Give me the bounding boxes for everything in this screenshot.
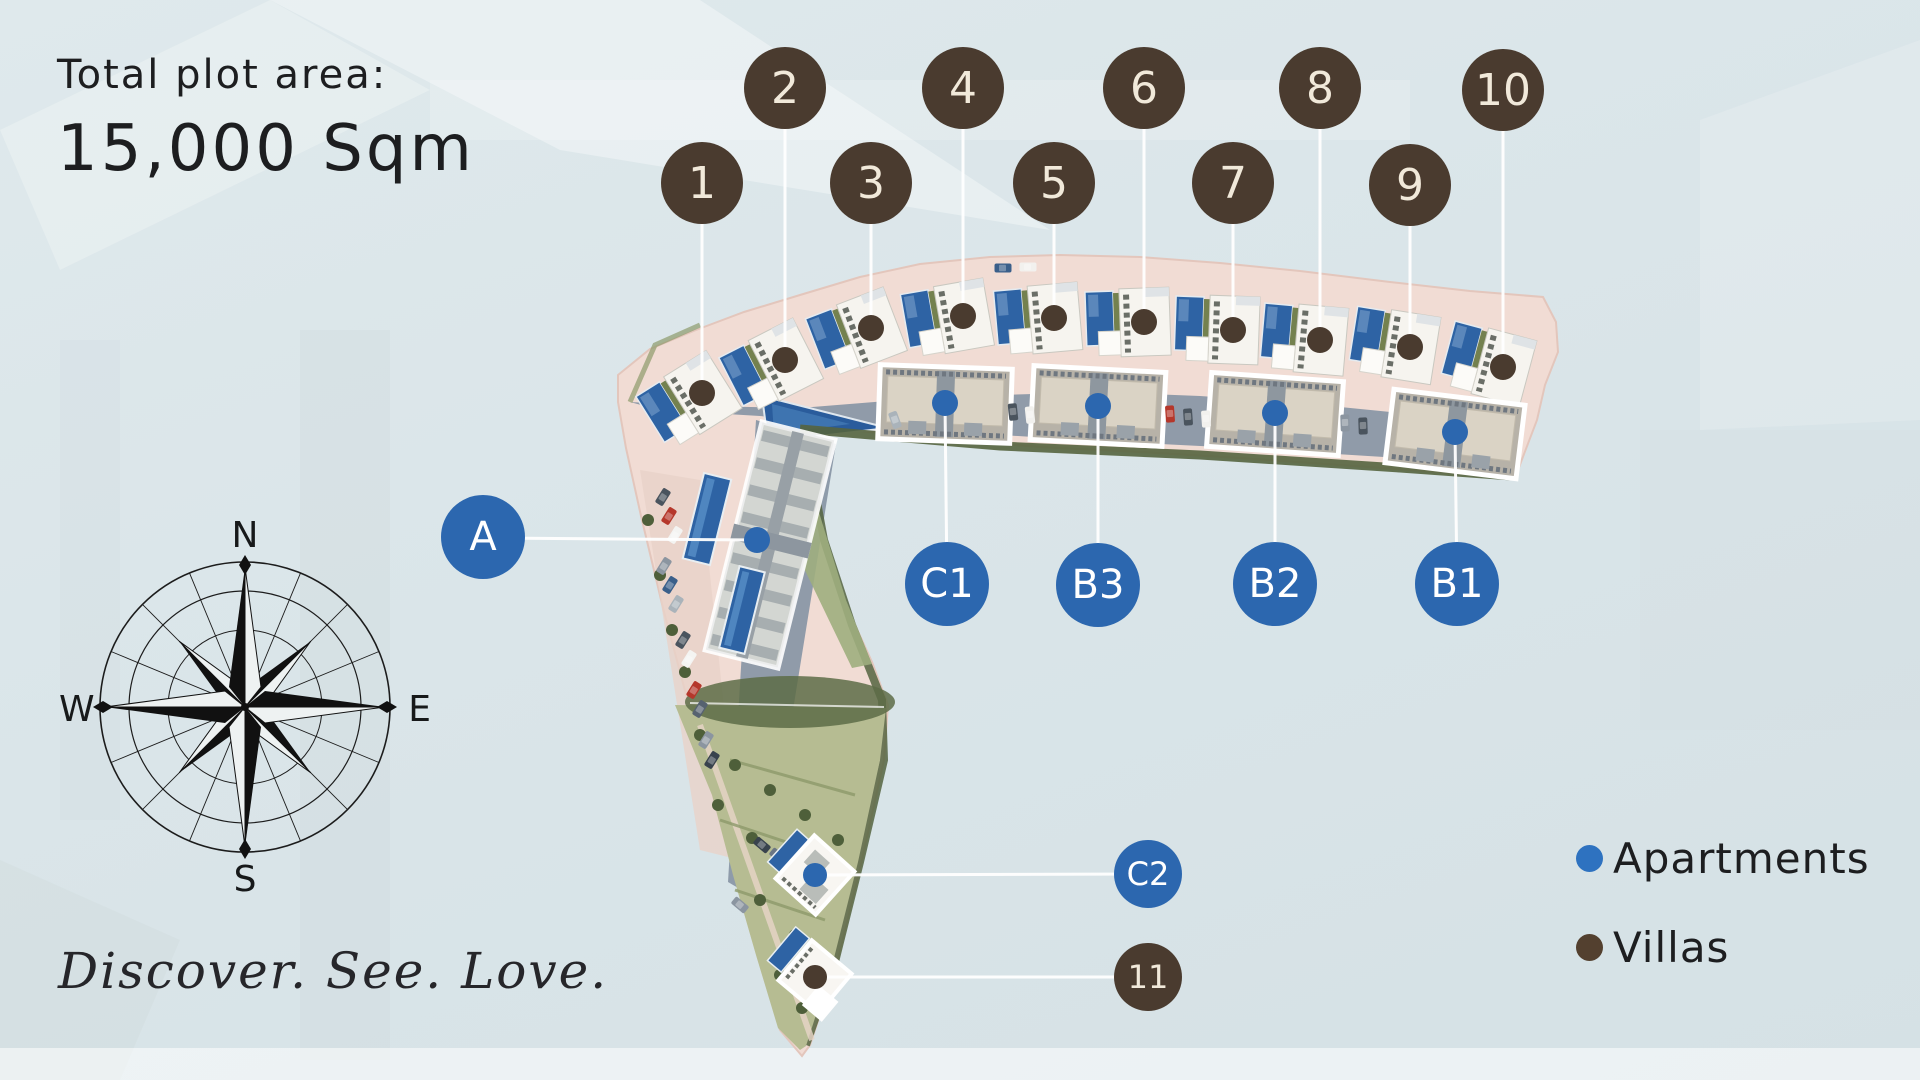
- villa-marker-3: 3: [830, 142, 912, 224]
- tagline: Discover. See. Love.: [58, 942, 608, 1000]
- connector-lines: [483, 88, 1503, 977]
- villa-marker-7: 7: [1192, 142, 1274, 224]
- plot-area-title: Total plot area: 15,000 Sqm: [57, 52, 475, 186]
- villa-marker-11: 11: [1114, 943, 1182, 1011]
- apartment-marker-b1: B1: [1415, 542, 1499, 626]
- legend: Apartments Villas: [1576, 834, 1870, 1012]
- apartment-marker-b3: B3: [1056, 543, 1140, 627]
- legend-apartments-row: Apartments: [1576, 834, 1870, 883]
- villa-marker-8-label: 8: [1306, 63, 1334, 114]
- villa-marker-9: 9: [1369, 144, 1451, 226]
- legend-villas-label: Villas: [1613, 923, 1729, 972]
- villa-marker-5: 5: [1013, 142, 1095, 224]
- villa-marker-11-label: 11: [1128, 958, 1169, 996]
- villa-marker-10: 10: [1462, 49, 1544, 131]
- villa-marker-8: 8: [1279, 47, 1361, 129]
- villa-marker-2-label: 2: [771, 63, 799, 114]
- site-plan-image: Total plot area: 15,000 Sqm: [0, 0, 1920, 1080]
- apartment-marker-b2: B2: [1233, 542, 1317, 626]
- apartment-marker-c2-label: C2: [1127, 855, 1170, 893]
- villa-marker-1-label: 1: [688, 158, 716, 209]
- plot-area-value: 15,000 Sqm: [57, 112, 475, 186]
- villa-marker-4-label: 4: [949, 63, 977, 114]
- villa-marker-2: 2: [744, 47, 826, 129]
- compass-west-label: W: [59, 689, 95, 730]
- villa-marker-10-label: 10: [1475, 65, 1531, 116]
- apartment-marker-b1-label: B1: [1431, 561, 1484, 607]
- villa-marker-7-label: 7: [1219, 158, 1247, 209]
- plot-area-label: Total plot area:: [57, 52, 475, 98]
- legend-apartments-label: Apartments: [1613, 834, 1870, 883]
- villa-marker-5-label: 5: [1040, 158, 1068, 209]
- apartment-marker-c1-label: C1: [920, 561, 973, 607]
- compass-south-label: S: [234, 859, 257, 897]
- apartment-marker-c2: C2: [1114, 840, 1182, 908]
- compass-east-label: E: [408, 689, 431, 730]
- compass-north-label: N: [232, 517, 259, 556]
- apartment-marker-c1: C1: [905, 542, 989, 626]
- villa-marker-6-label: 6: [1130, 63, 1158, 114]
- legend-villas-row: Villas: [1576, 923, 1870, 972]
- villa-marker-9-label: 9: [1396, 160, 1424, 211]
- apartment-marker-a-label: A: [469, 514, 496, 560]
- villa-marker-4: 4: [922, 47, 1004, 129]
- apartment-marker-b3-label: B3: [1072, 562, 1125, 608]
- apartment-marker-a: A: [441, 495, 525, 579]
- villa-marker-6: 6: [1103, 47, 1185, 129]
- compass-rose: N S W E: [55, 517, 435, 897]
- villa-marker-1: 1: [661, 142, 743, 224]
- legend-apartments-dot: [1576, 845, 1603, 872]
- legend-villas-dot: [1576, 934, 1603, 961]
- villa-marker-3-label: 3: [857, 158, 885, 209]
- apartment-marker-b2-label: B2: [1249, 561, 1302, 607]
